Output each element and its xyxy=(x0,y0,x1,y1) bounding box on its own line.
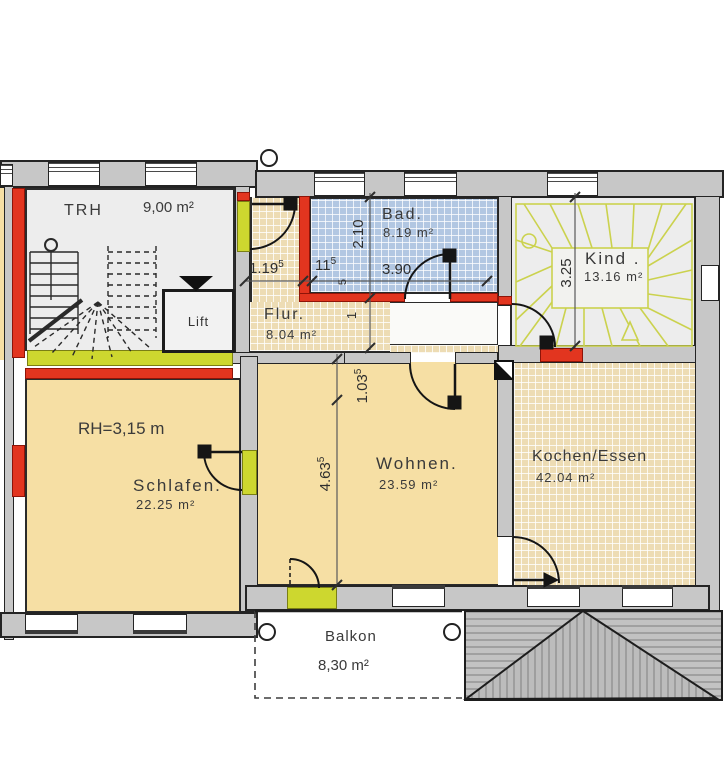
window-bad-1 xyxy=(314,172,365,196)
jamb-kind-door xyxy=(498,296,512,305)
corridor-kind-door xyxy=(390,302,498,345)
dim-bad-width: 3.90 xyxy=(382,260,411,278)
balkon-label: Balkon xyxy=(325,628,377,645)
wall-bad-south-right xyxy=(450,293,498,302)
dim-bad-depth: 2.10 xyxy=(349,211,367,257)
threshold-schlafen-door xyxy=(242,450,257,495)
window-sill xyxy=(392,585,445,589)
exterior-wall-right xyxy=(695,196,720,611)
wall-kind-south xyxy=(498,345,720,363)
room-flur-north xyxy=(250,197,301,303)
trh-label: TRH xyxy=(64,202,103,220)
flur-label: Flur. xyxy=(264,306,305,324)
window-bad-2 xyxy=(404,172,457,196)
flur-area: 8.04 m² xyxy=(266,327,317,342)
bad-label: Bad. xyxy=(382,206,423,224)
dim-kind-depth: 3.25 xyxy=(557,250,575,296)
lift-label: Lift xyxy=(188,314,209,329)
radiator-schlafen-north xyxy=(25,368,233,379)
jamb-flur-entry xyxy=(237,192,250,201)
window-sill xyxy=(25,630,78,634)
dim-recess: 1.035 xyxy=(353,358,371,414)
wohnen-label: Wohnen. xyxy=(376,454,458,474)
balcony-outline xyxy=(255,611,462,698)
window-kochen-south-1 xyxy=(527,587,580,607)
window-trh-2 xyxy=(145,162,197,186)
wall-bad-south-left xyxy=(299,293,405,302)
trh-area: 9,00 m² xyxy=(143,199,194,216)
radiator-trh-west xyxy=(12,188,25,358)
radiator-kind-south xyxy=(540,348,583,362)
dim-flur-width: 1.195 xyxy=(249,259,284,277)
kochen-label: Kochen/Essen xyxy=(532,448,647,466)
threshold-flur-entry xyxy=(237,201,250,252)
bad-area: 8.19 m² xyxy=(383,225,434,240)
window-kochen-south-2 xyxy=(622,587,673,607)
room-wohnen xyxy=(256,362,498,586)
schlafen-label: Schlafen. xyxy=(133,476,222,496)
lift-box: Lift xyxy=(162,289,235,353)
dim-sub-five: 5 xyxy=(337,279,349,285)
window-sill xyxy=(133,630,187,634)
kochen-area: 42.04 m² xyxy=(536,470,595,485)
roof xyxy=(465,611,722,700)
wall-wohnen-kochen xyxy=(497,360,513,537)
window-top-sliver xyxy=(0,164,13,186)
window-kind xyxy=(547,172,598,196)
window-trh-1 xyxy=(48,162,100,186)
vent-circle xyxy=(261,150,277,166)
wall-bad-east xyxy=(498,196,512,306)
wohnen-area: 23.59 m² xyxy=(379,477,438,492)
radiator-bad-west xyxy=(299,196,310,302)
dim-one: 1 xyxy=(344,312,359,319)
balkon-area: 8,30 m² xyxy=(318,657,369,674)
exterior-wall-top-left xyxy=(0,160,258,188)
floor-plan: Lift xyxy=(0,0,724,757)
kind-label: Kind . xyxy=(585,249,640,269)
window-sill xyxy=(622,585,673,589)
schlafen-rh: RH=3,15 m xyxy=(78,419,164,439)
kind-area: 13.16 m² xyxy=(584,269,643,284)
dim-wohnen-depth: 4.635 xyxy=(316,446,334,502)
radiator-schlafen-west xyxy=(12,445,25,497)
window-right-wall xyxy=(701,265,719,301)
wall-wohnen-north-right xyxy=(455,352,498,364)
threshold-balkon-door xyxy=(287,587,337,609)
window-sill xyxy=(527,585,580,589)
window-wohnen-south xyxy=(392,587,445,607)
schlafen-area: 22.25 m² xyxy=(136,497,195,512)
dim-wall-thickness: 115 xyxy=(315,256,336,274)
